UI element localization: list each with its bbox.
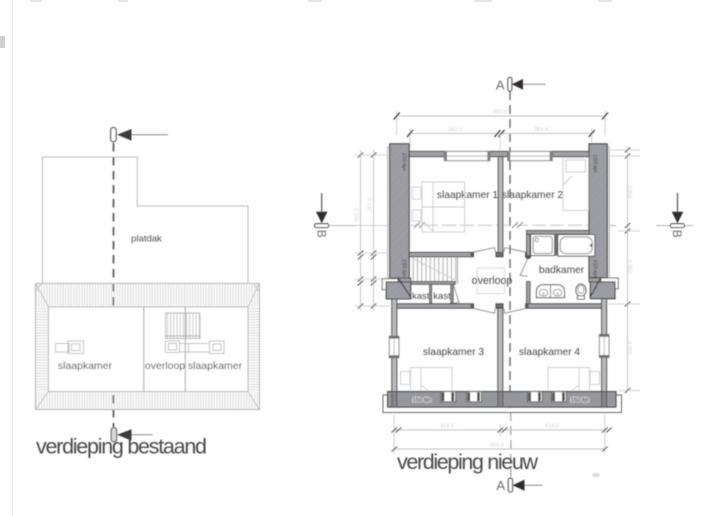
svg-text:150-lijn: 150-lijn	[591, 155, 597, 173]
svg-text:450.0: 450.0	[628, 185, 634, 199]
svg-text:150-lijn: 150-lijn	[400, 259, 406, 277]
svg-text:overloop: overloop	[145, 360, 185, 372]
svg-text:850.0: 850.0	[493, 110, 507, 116]
svg-text:slaapkamer 2: slaapkamer 2	[502, 190, 563, 201]
svg-text:258.4: 258.4	[628, 260, 634, 274]
svg-text:slaapkamer: slaapkamer	[188, 360, 243, 372]
svg-text:544.0: 544.0	[628, 341, 634, 355]
svg-text:414.0: 414.0	[440, 424, 454, 430]
svg-text:297.0: 297.0	[368, 198, 374, 212]
svg-text:150-lijn: 150-lijn	[571, 398, 590, 404]
svg-text:kast: kast	[412, 291, 430, 302]
svg-text:B: B	[670, 230, 684, 238]
svg-text:150-lijn: 150-lijn	[591, 260, 597, 278]
svg-text:384.4: 384.4	[534, 127, 548, 133]
svg-text:A: A	[496, 78, 505, 93]
svg-text:badkamer: badkamer	[539, 265, 585, 276]
svg-text:slaapkamer: slaapkamer	[58, 360, 113, 372]
svg-text:B: B	[314, 230, 328, 238]
svg-text:414.0: 414.0	[545, 424, 559, 430]
svg-text:kast: kast	[433, 291, 451, 302]
svg-text:A: A	[496, 478, 505, 493]
svg-text:overloop: overloop	[472, 275, 513, 287]
svg-text:850.0: 850.0	[490, 443, 504, 449]
svg-text:slaapkamer 4: slaapkamer 4	[519, 347, 580, 358]
svg-text:302.3: 302.3	[355, 208, 361, 222]
svg-text:150-lijn: 150-lijn	[400, 153, 406, 171]
svg-text:slaapkamer 1: slaapkamer 1	[437, 190, 498, 201]
svg-text:150-lijn: 150-lijn	[413, 398, 432, 404]
svg-text:verdieping nieuw: verdieping nieuw	[397, 450, 538, 474]
svg-text:verdieping bestaand: verdieping bestaand	[36, 435, 207, 459]
svg-text:platdak: platdak	[131, 234, 162, 245]
svg-text:slaapkamer 3: slaapkamer 3	[423, 347, 484, 358]
svg-text:382.9: 382.9	[448, 127, 462, 133]
